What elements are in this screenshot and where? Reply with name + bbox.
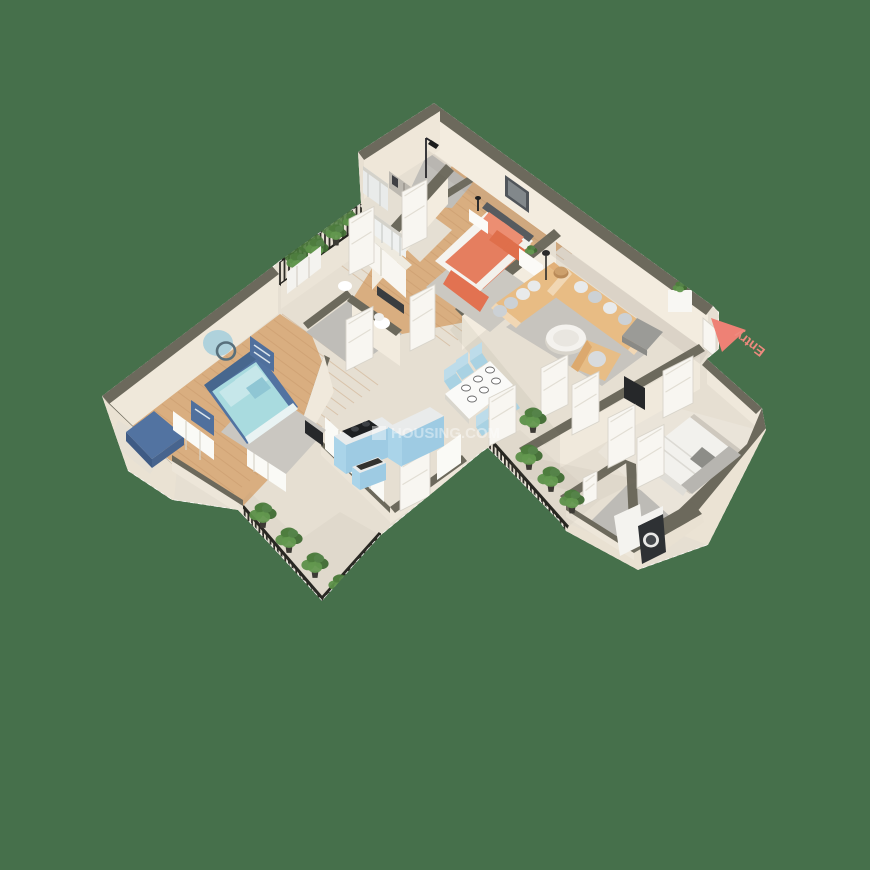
svg-text:HOUSING.COM: HOUSING.COM bbox=[391, 425, 500, 442]
